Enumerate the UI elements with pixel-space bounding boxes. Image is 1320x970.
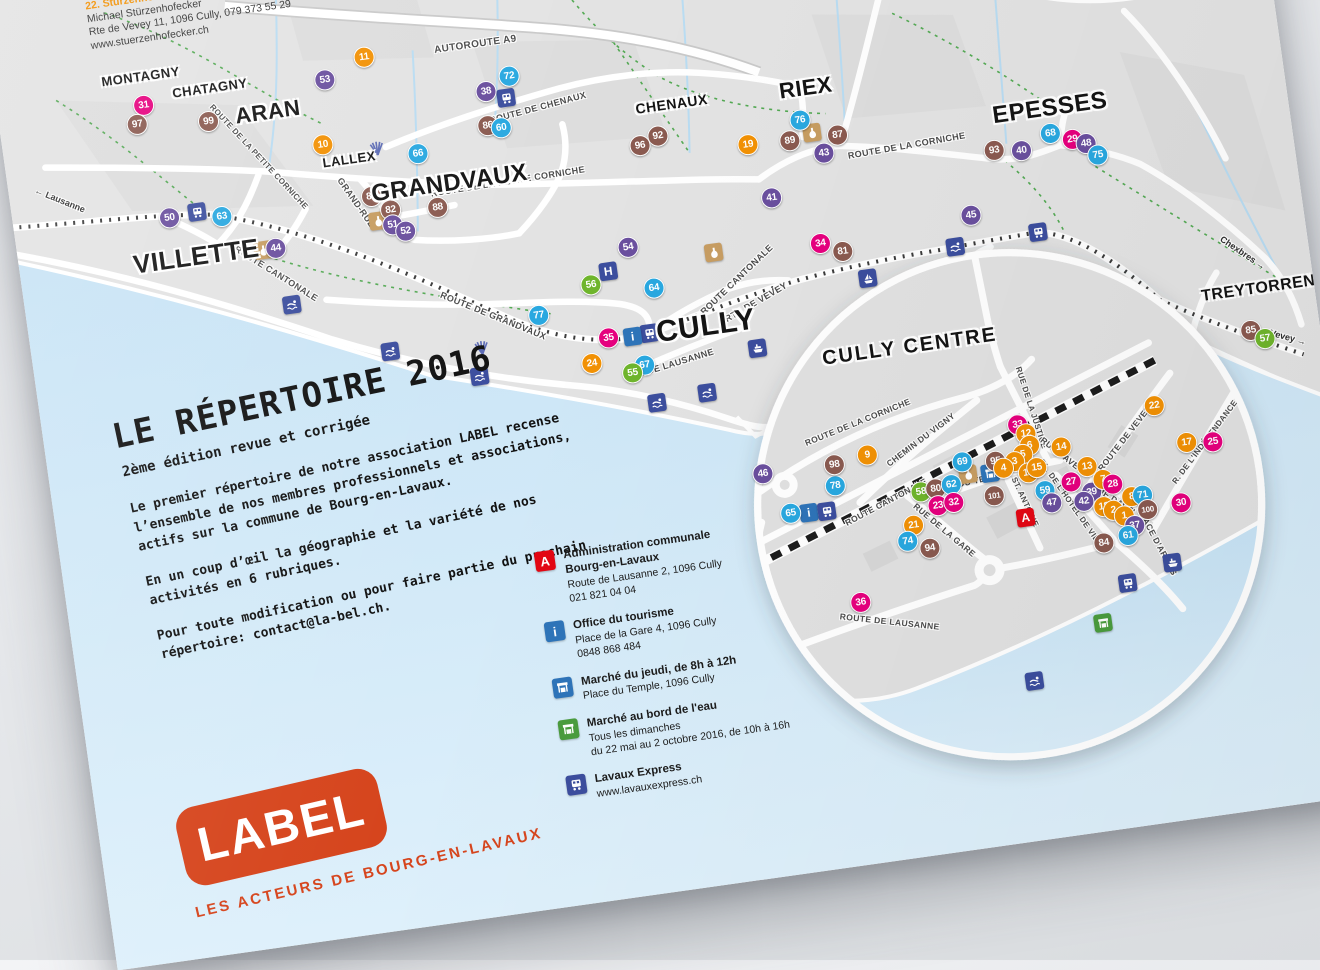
legend-text: Marché du jeudi, de 8h à 12hPlace du Tem…: [580, 653, 739, 704]
legend-text: Lavaux Expresswww.lavauxexpress.ch: [594, 757, 703, 801]
screenshot-root: { "palette":{ "categories":{"orange":"#F…: [0, 0, 1320, 960]
poster-sheet: AUTOROUTE A9ROUTE DE CHENAUXROUTE DE LA …: [0, 0, 1320, 970]
market-green-icon: [557, 718, 580, 741]
legend-text: Office du tourismePlace de la Gare 4, 10…: [572, 599, 719, 662]
market-blue-icon: [551, 676, 574, 699]
legend: AAdministration communale Bourg-en-Lavau…: [534, 506, 898, 817]
directory-entry-number: 22.: [85, 0, 101, 13]
info-icon: i: [544, 620, 567, 643]
admin-icon: A: [534, 550, 557, 573]
train-icon: [565, 773, 588, 796]
